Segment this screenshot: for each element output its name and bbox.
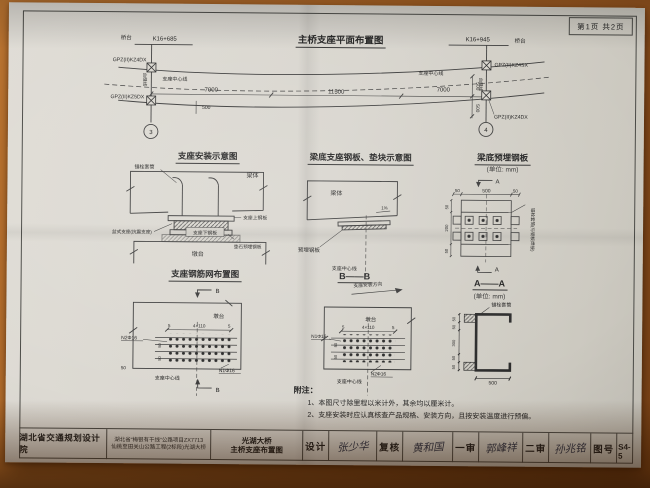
- desk-shading-overlay: [0, 0, 650, 488]
- desk-background: 第1页 共2页 主桥支座平面布置图 桥台: [0, 0, 650, 488]
